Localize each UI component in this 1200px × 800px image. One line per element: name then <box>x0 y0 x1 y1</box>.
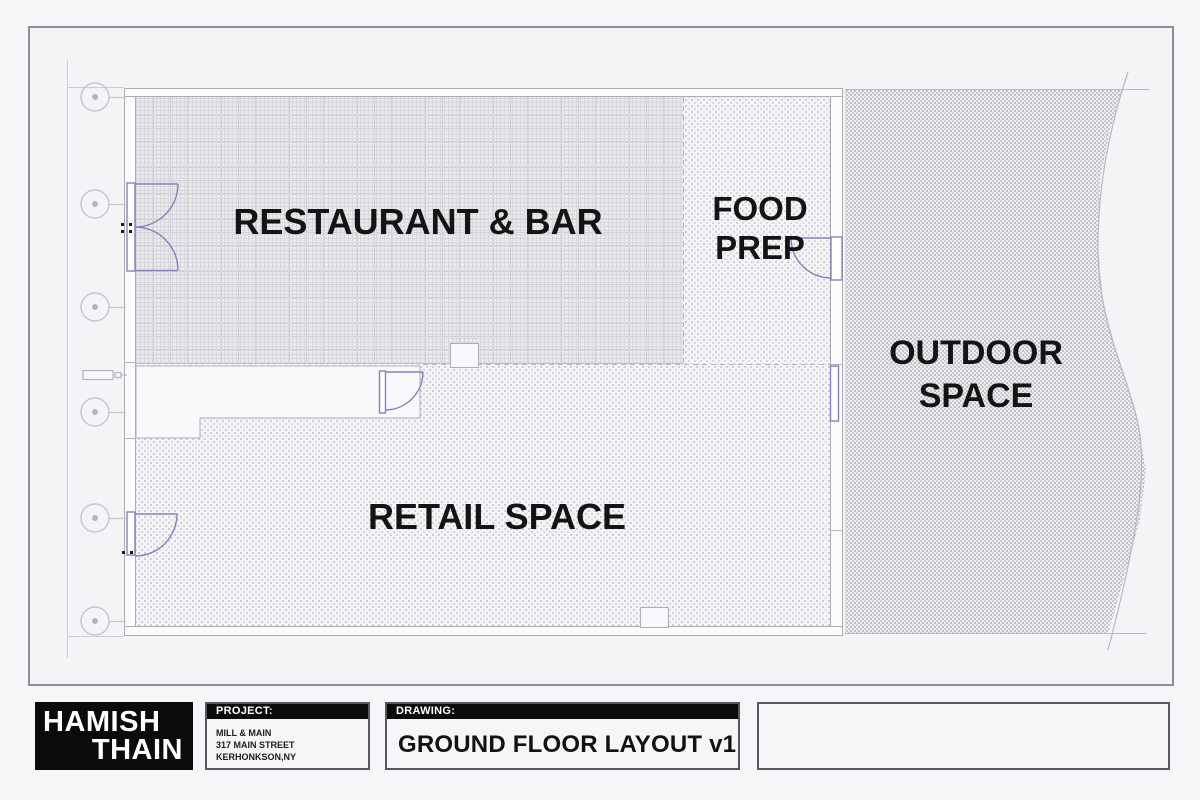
firm-logo-block: HAMISH THAIN <box>35 702 193 770</box>
retail-rear-notch <box>641 608 669 628</box>
restaurant-label: RESTAURANT & BAR <box>228 203 608 242</box>
project-address-line2: 317 MAIN STREET <box>216 739 368 751</box>
drawing-title: GROUND FLOOR LAYOUT v1 <box>387 719 738 759</box>
break-line <box>1098 72 1142 650</box>
food-prep-line1: FOOD <box>712 190 807 227</box>
retail-label: RETAIL SPACE <box>327 498 667 537</box>
food-prep-line2: PREP <box>715 229 805 266</box>
project-address-line3: KERHONKSON,NY <box>216 751 368 763</box>
drawing-title-block: DRAWING: GROUND FLOOR LAYOUT v1 <box>385 702 740 770</box>
firm-name-line1: HAMISH <box>35 708 193 736</box>
drawing-header: DRAWING: <box>387 704 738 719</box>
column-grid-markers <box>81 83 126 635</box>
extension-lines <box>67 60 124 658</box>
restaurant-retail-passage <box>451 344 479 368</box>
project-header: PROJECT: <box>207 704 368 719</box>
restaurant-label-text: RESTAURANT & BAR <box>233 201 602 242</box>
food-prep-label: FOOD PREP <box>680 189 840 267</box>
floorplan-sheet: { "rooms": { "restaurant": { "label": "R… <box>0 0 1200 800</box>
project-info-block: PROJECT: MILL & MAIN 317 MAIN STREET KER… <box>205 702 370 770</box>
outdoor-line1: OUTDOOR <box>889 334 1063 372</box>
retail-label-text: RETAIL SPACE <box>368 496 626 537</box>
retail-door <box>127 512 177 556</box>
section-marker <box>83 371 127 380</box>
restaurant-double-door <box>127 183 178 271</box>
building-walls <box>125 89 843 636</box>
project-address: MILL & MAIN 317 MAIN STREET KERHONKSON,N… <box>207 719 368 763</box>
revision-block-empty <box>757 702 1170 770</box>
entry-corridor <box>136 366 420 438</box>
firm-name-line2: THAIN <box>35 736 193 764</box>
project-address-line1: MILL & MAIN <box>216 727 368 739</box>
outdoor-line2: SPACE <box>919 377 1034 415</box>
retail-window <box>831 366 839 421</box>
outdoor-space-label: OUTDOOR SPACE <box>866 332 1086 418</box>
